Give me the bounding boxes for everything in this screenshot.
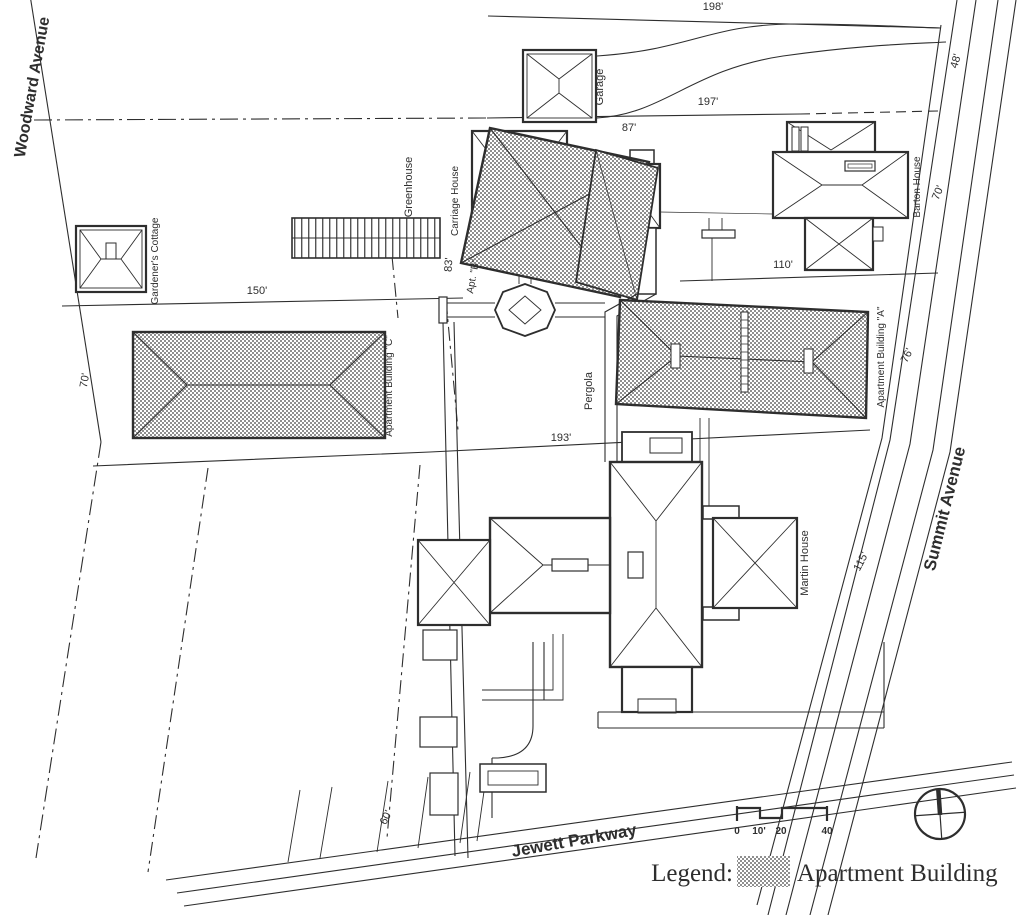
woodward-avenue-label: Woodward Avenue <box>12 15 54 158</box>
garage-walls <box>523 50 596 122</box>
terrace-walk <box>482 634 563 700</box>
barton-walk <box>709 218 722 281</box>
barton-chimney-1 <box>792 127 799 151</box>
building-apartment-a: Apartment Building "A" <box>616 300 887 418</box>
building-apartment-b: Apt. "B" <box>461 128 658 300</box>
martin-front-steps <box>480 764 546 792</box>
north-lot-line-dashed <box>800 111 938 114</box>
legend-item-label: Apartment Building <box>797 860 998 887</box>
apt-a-label: Apartment Building "A" <box>876 306 887 407</box>
dim-70-west: 70' <box>78 372 92 388</box>
dim-87: 87' <box>622 122 636 134</box>
north-arrow-icon <box>913 787 966 840</box>
legend-hatch-swatch <box>737 856 790 887</box>
carriage-house-label: Carriage House <box>450 166 461 236</box>
barton-house-label: Barton House <box>912 156 923 218</box>
woodward-lot-line <box>36 442 101 858</box>
structure-fountain <box>495 284 555 336</box>
barton-north-wing <box>787 122 875 152</box>
summit-avenue-label: Summit Avenue <box>920 445 969 573</box>
martin-garden-pier-1 <box>423 630 457 660</box>
scale-tick-40: 40 <box>821 826 833 837</box>
dim-198: 198' <box>703 1 723 13</box>
martin-garden-pier-3 <box>430 773 458 815</box>
pergola-label: Pergola <box>583 371 595 410</box>
lot-line-dashdot-a <box>392 256 398 318</box>
jewett-street-line-3 <box>184 788 1016 906</box>
martin-south-stub-inner <box>638 699 676 713</box>
dim-110: 110' <box>773 259 793 271</box>
apt-a-chimney-west <box>671 344 680 368</box>
scale-tick-10: 10' <box>752 826 766 837</box>
gardeners-cottage-label: Gardener's Cottage <box>150 217 161 304</box>
barton-chimney-2 <box>801 127 808 151</box>
greenhouse-label: Greenhouse <box>403 157 415 218</box>
martin-house-label: Martin House <box>799 530 811 595</box>
barton-walk-cap <box>702 230 735 238</box>
building-barton-house: Barton House <box>773 122 923 270</box>
dim-48: 48' <box>948 53 963 70</box>
dim-197: 197' <box>698 96 718 108</box>
apt-a-chimney-east <box>804 349 813 373</box>
dim-60: 60' <box>378 809 395 827</box>
legend-title: Legend: <box>651 860 733 887</box>
scale-bar-shape <box>737 806 827 821</box>
lot-line-dashdot-60 <box>387 465 420 838</box>
fountain-outer <box>495 284 555 336</box>
building-apartment-c: Apartment Building "C" <box>133 332 395 438</box>
garage-driveway-upper <box>597 24 941 56</box>
dim-70-east: 70' <box>930 184 947 202</box>
lot-line-dashdot-left <box>148 468 208 872</box>
dim-83: 83' <box>443 257 456 272</box>
north-arrow-cross <box>915 812 967 840</box>
martin-garden-pier-2 <box>420 717 457 747</box>
dim-115: 115' <box>852 550 872 573</box>
lot-line-150 <box>62 298 463 306</box>
site-plan-drawing: Garage Gardener's Cottage Greenhouse Car… <box>0 0 1024 915</box>
scale-tick-20: 20 <box>775 826 787 837</box>
building-martin-house: Martin House <box>418 432 884 815</box>
jewett-parkway-label: Jewett Parkway <box>510 820 639 861</box>
building-greenhouse: Greenhouse <box>292 157 440 258</box>
north-arrow-needle <box>938 789 940 815</box>
barton-roof-vent <box>845 161 875 171</box>
martin-west-chimney <box>552 559 588 571</box>
site-plan-svg: Garage Gardener's Cottage Greenhouse Car… <box>0 0 1024 915</box>
dim-76: 76' <box>899 347 916 365</box>
building-gardeners-cottage: Gardener's Cottage <box>76 217 161 304</box>
building-garage: Garage <box>523 50 606 122</box>
martin-west-wing <box>490 518 610 613</box>
dim-150: 150' <box>247 285 267 297</box>
garage-driveway-lower <box>597 42 946 118</box>
barton-side-tab <box>873 227 883 241</box>
scale-tick-0: 0 <box>734 826 740 837</box>
north-property-line <box>488 16 941 28</box>
north-lot-line-dashdot <box>34 118 487 120</box>
garage-label: Garage <box>594 69 606 106</box>
cottage-chimney <box>106 243 116 259</box>
martin-chimney <box>628 552 643 578</box>
fountain-walk-cap <box>439 297 447 323</box>
legend: Legend: Apartment Building <box>651 856 998 887</box>
apt-c-label: Apartment Building "C" <box>384 335 395 437</box>
conservatory-barton-line <box>660 212 773 214</box>
lot-line-110 <box>680 273 938 281</box>
martin-north-stub-inner <box>650 438 682 453</box>
dim-193: 193' <box>551 432 571 444</box>
